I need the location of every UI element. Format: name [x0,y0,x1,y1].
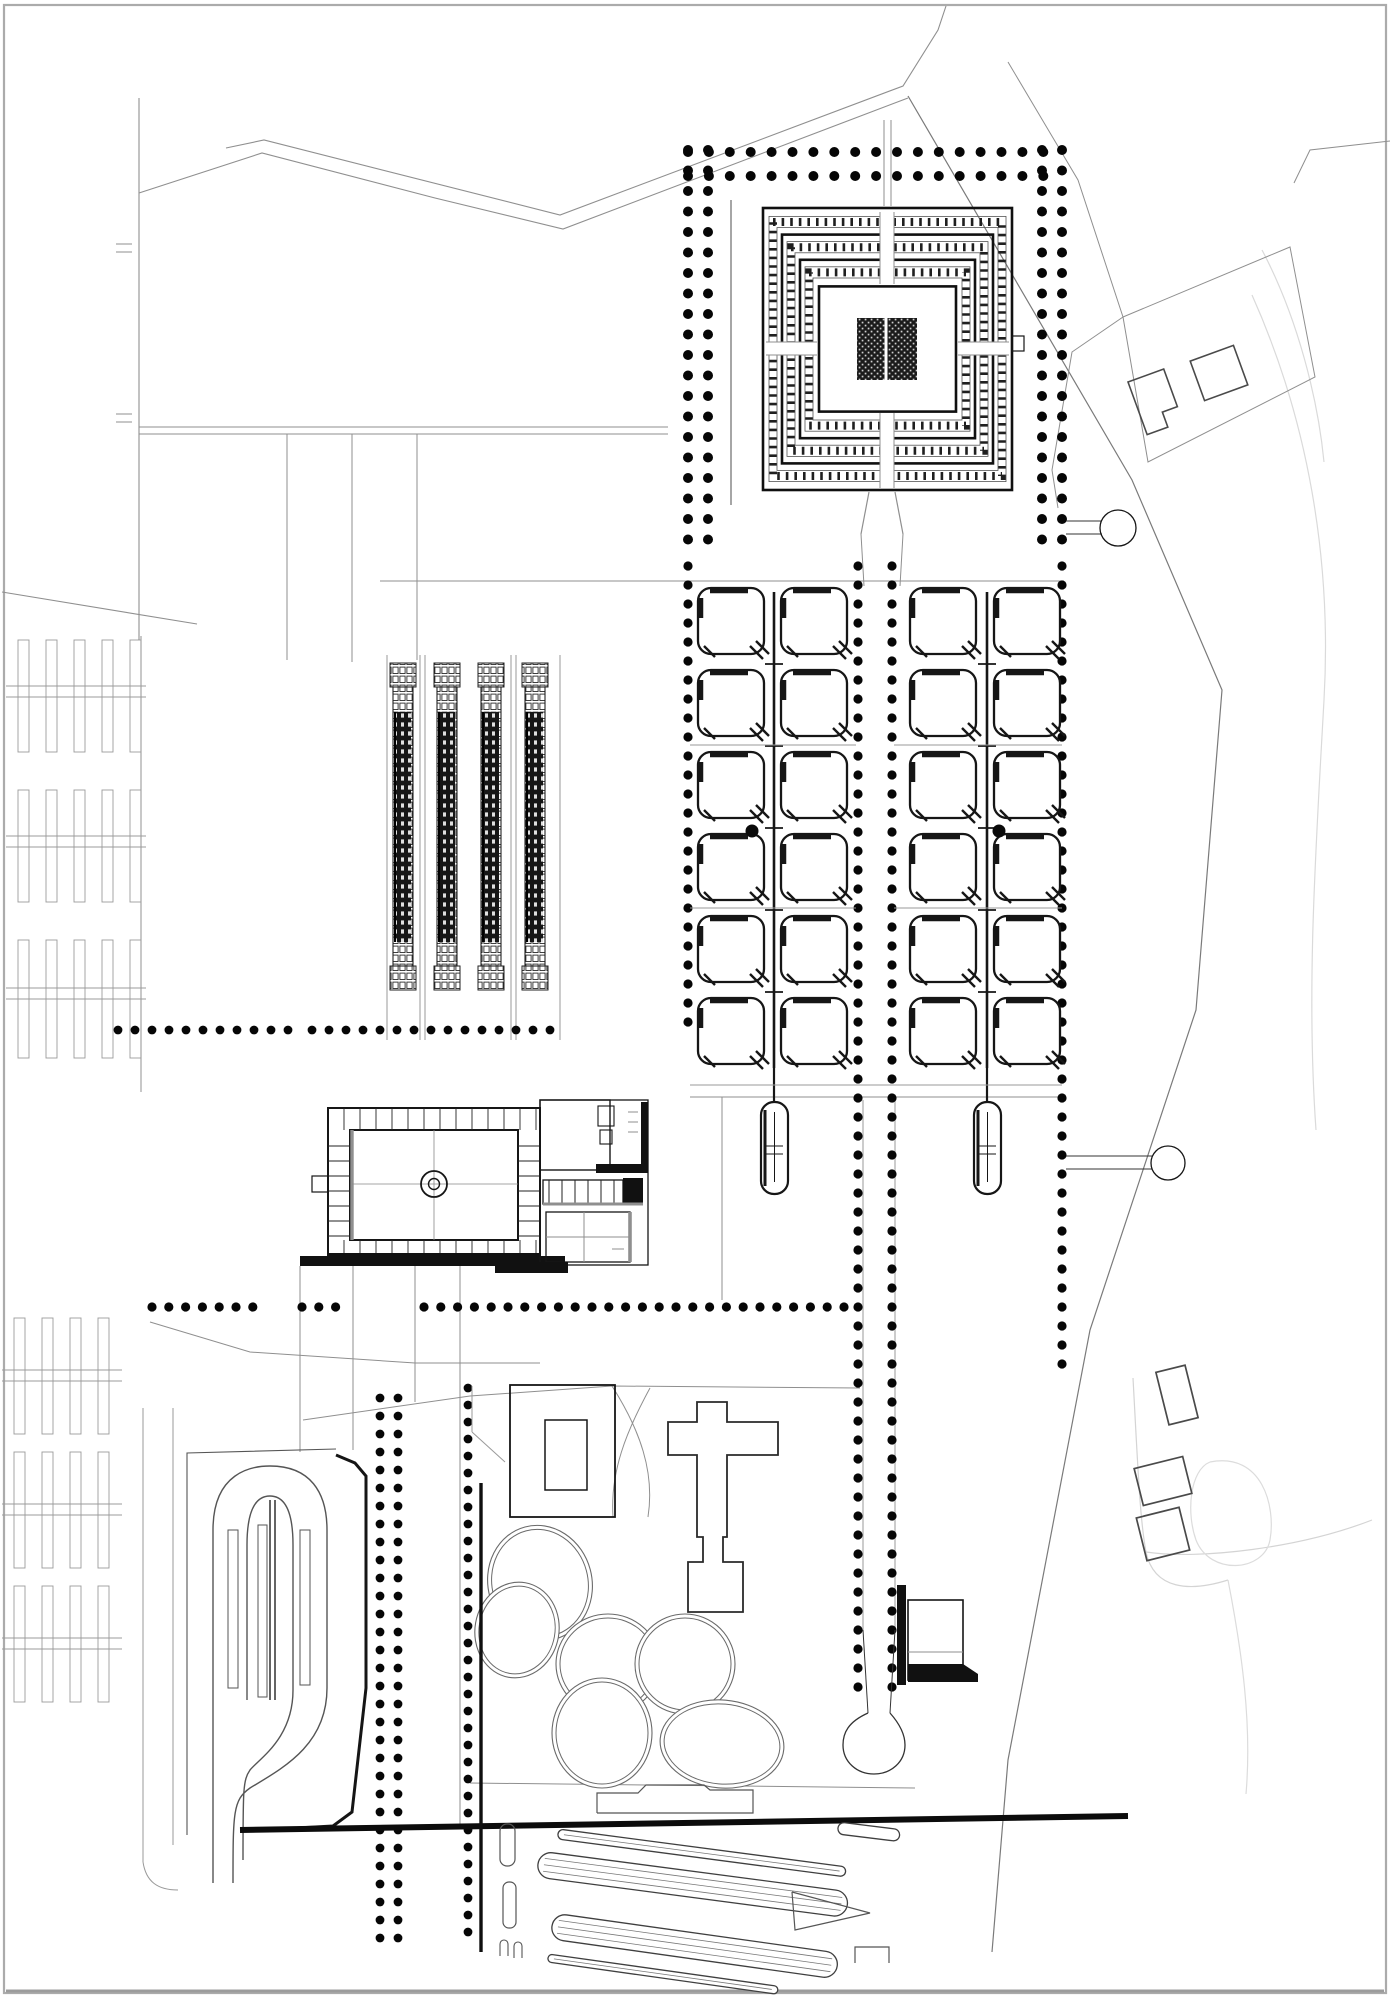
temple-complex [731,120,1024,586]
city-grid-southwest [2,1318,122,1702]
slab-housing-rows [390,663,548,990]
terrain-contours [1133,250,1372,1794]
site-plan-drawing [0,0,1390,2000]
park-south [467,1385,787,1793]
city-grid-northwest [6,636,146,1092]
buildings-northeast [1128,345,1248,434]
mosque-complex [300,1100,648,1273]
buildings-southeast [1134,1365,1198,1560]
housing-cluster-east [910,588,1065,1194]
site-plan [0,0,1390,2000]
housing-cluster-west [698,588,852,1194]
transit-loop-southwest [143,1408,366,1890]
